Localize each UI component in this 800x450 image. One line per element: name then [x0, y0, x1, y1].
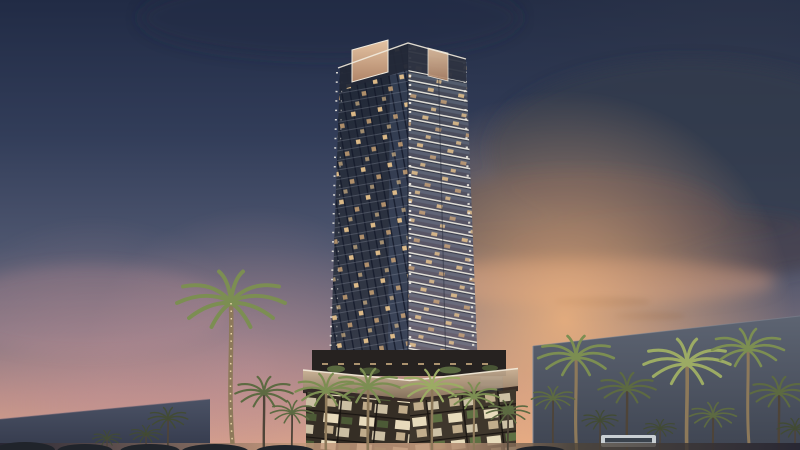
dusk-tower-scene [0, 0, 800, 450]
palm-trunk [553, 399, 554, 450]
palm-trunk [168, 419, 169, 450]
palm-trunk [326, 392, 327, 450]
palm-trunk [292, 413, 293, 450]
palm-trunk [748, 350, 749, 444]
palm-trunk [687, 364, 689, 450]
palm-trunk [368, 388, 369, 450]
palm-trunk [779, 394, 780, 450]
palm-trunk [432, 388, 433, 450]
palm-trunk [264, 394, 265, 450]
tower-shadow-face [330, 44, 408, 372]
palm-trunk [508, 413, 509, 450]
rendering-canvas [0, 0, 800, 450]
palm-trunk [474, 397, 475, 450]
palm-trunk [576, 358, 577, 450]
bus-windows [605, 438, 652, 443]
main-tower [330, 40, 478, 372]
street-ground [0, 443, 800, 450]
palm-trunk [230, 303, 232, 444]
